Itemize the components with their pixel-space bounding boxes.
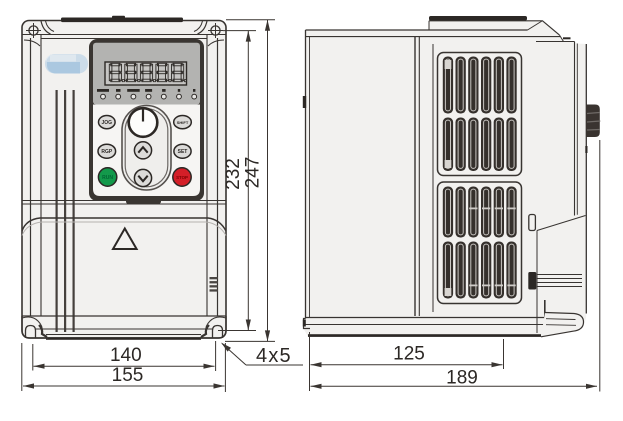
svg-text:STOP: STOP (176, 175, 188, 180)
svg-text:RGP: RGP (101, 149, 113, 155)
svg-text:247: 247 (243, 157, 264, 189)
svg-text:125: 125 (393, 344, 425, 365)
svg-text:SET: SET (178, 149, 188, 155)
svg-text:232: 232 (223, 158, 244, 190)
svg-text:RUN: RUN (102, 175, 113, 181)
svg-text:155: 155 (112, 365, 144, 386)
svg-text:189: 189 (446, 368, 478, 389)
svg-text:JOG: JOG (102, 120, 113, 126)
svg-text:140: 140 (110, 345, 142, 366)
svg-text:SHIFT: SHIFT (177, 120, 189, 125)
svg-text:4x5: 4x5 (256, 345, 292, 367)
